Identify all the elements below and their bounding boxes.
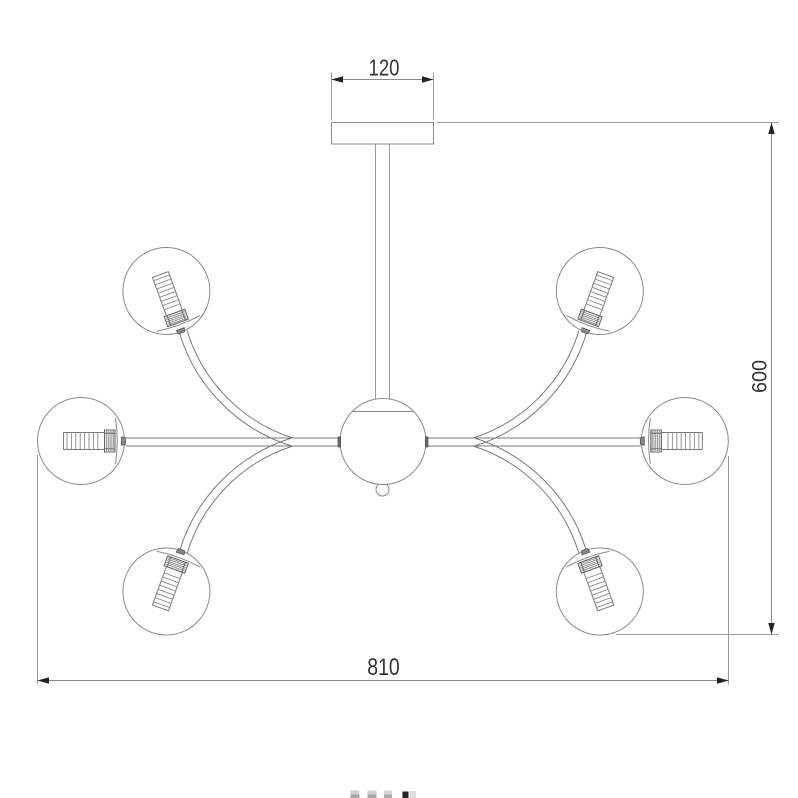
- svg-text:810: 810: [367, 654, 400, 681]
- svg-text:120: 120: [369, 55, 400, 81]
- svg-text:600: 600: [749, 360, 772, 393]
